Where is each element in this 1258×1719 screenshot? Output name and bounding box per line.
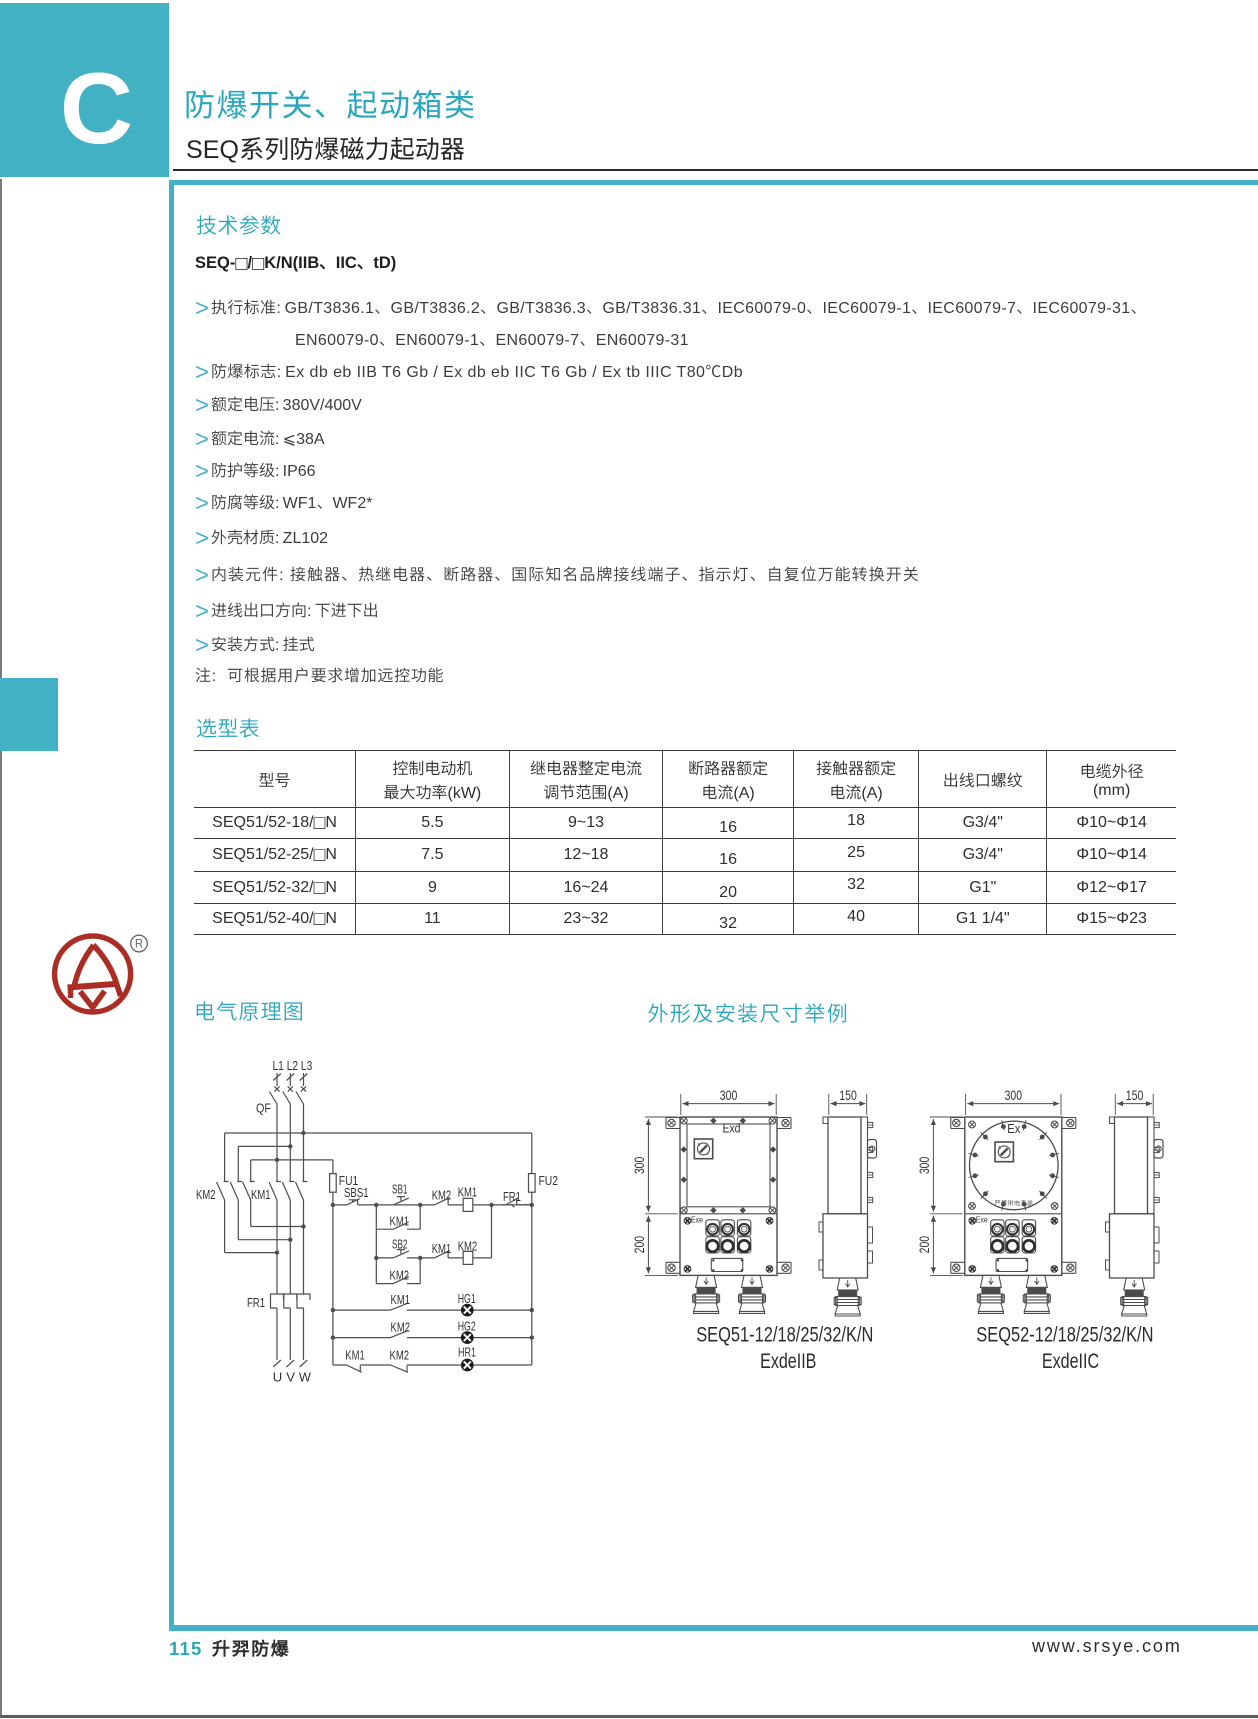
- svg-text:Ex: Ex: [1007, 1121, 1020, 1136]
- svg-text:Exd: Exd: [723, 1121, 741, 1135]
- svg-text:KM2: KM2: [390, 1349, 410, 1363]
- svg-text:Exe: Exe: [976, 1215, 988, 1225]
- svg-text:200: 200: [916, 1236, 932, 1254]
- svg-text:W: W: [299, 1369, 312, 1384]
- svg-text:SEQ52-12/18/25/32/K/N: SEQ52-12/18/25/32/K/N: [976, 1323, 1153, 1346]
- svg-text:HG1: HG1: [458, 1292, 476, 1306]
- svg-text:200: 200: [631, 1236, 647, 1254]
- svg-text:R: R: [135, 939, 143, 951]
- svg-text:KM1: KM1: [432, 1243, 452, 1257]
- svg-text:SEQ51-12/18/25/32/K/N: SEQ51-12/18/25/32/K/N: [696, 1323, 873, 1346]
- svg-text:300: 300: [1005, 1088, 1023, 1104]
- svg-text:KM1: KM1: [458, 1186, 478, 1200]
- svg-text:300: 300: [720, 1088, 738, 1104]
- svg-text:KM1: KM1: [390, 1215, 410, 1229]
- svg-text:HG2: HG2: [458, 1320, 476, 1334]
- svg-text:300: 300: [916, 1157, 932, 1175]
- svg-text:SBS1: SBS1: [344, 1187, 369, 1201]
- svg-text:SB2: SB2: [392, 1238, 407, 1252]
- svg-text:KM1: KM1: [391, 1294, 411, 1308]
- svg-text:严禁带电开盖: 严禁带电开盖: [994, 1197, 1034, 1207]
- svg-text:150: 150: [1126, 1088, 1144, 1104]
- svg-text:FU2: FU2: [539, 1174, 558, 1188]
- svg-text:KM2: KM2: [432, 1189, 452, 1203]
- svg-text:QF: QF: [256, 1101, 271, 1116]
- svg-text:150: 150: [839, 1088, 857, 1104]
- svg-text:ExdeIIC: ExdeIIC: [1042, 1349, 1099, 1373]
- svg-text:KM2: KM2: [458, 1240, 478, 1254]
- svg-text:KM2: KM2: [196, 1189, 216, 1203]
- svg-text:U: U: [273, 1370, 282, 1385]
- svg-text:FR1: FR1: [503, 1191, 521, 1205]
- svg-text:HR1: HR1: [458, 1346, 476, 1360]
- svg-text:Exe: Exe: [691, 1215, 703, 1225]
- svg-text:KM1: KM1: [345, 1349, 365, 1363]
- svg-text:KM2: KM2: [390, 1269, 410, 1283]
- svg-text:SB1: SB1: [392, 1183, 407, 1197]
- svg-text:V: V: [286, 1370, 295, 1385]
- svg-text:FR1: FR1: [247, 1297, 265, 1311]
- svg-text:L1 L2 L3: L1 L2 L3: [273, 1059, 313, 1073]
- svg-text:KM2: KM2: [391, 1321, 411, 1335]
- svg-text:KM1: KM1: [251, 1189, 271, 1203]
- svg-text:300: 300: [631, 1157, 647, 1175]
- svg-text:ExdeIIB: ExdeIIB: [760, 1349, 816, 1373]
